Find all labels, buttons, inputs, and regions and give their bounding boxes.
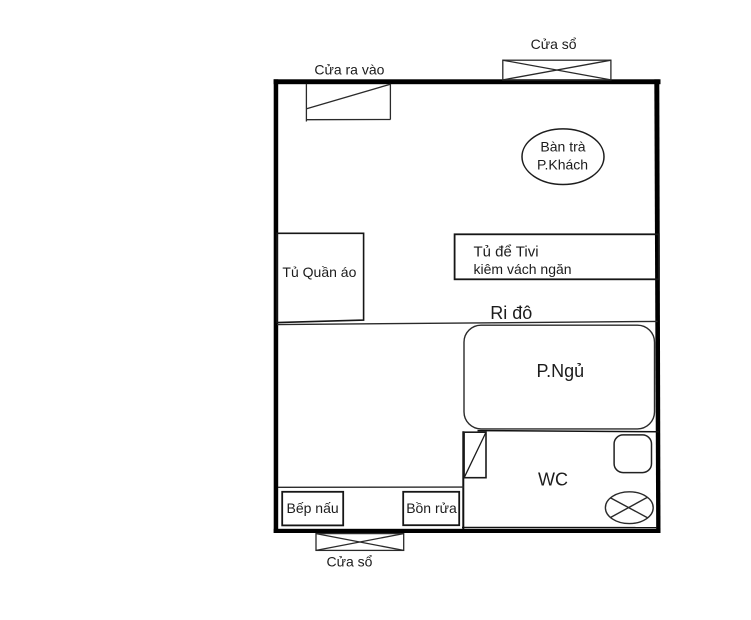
svg-text:Bồn rửa: Bồn rửa bbox=[406, 500, 457, 516]
svg-text:Bếp nấu: Bếp nấu bbox=[287, 500, 339, 516]
svg-text:Tủ để Tivi: Tủ để Tivi bbox=[474, 244, 539, 261]
svg-text:WC: WC bbox=[538, 469, 568, 489]
svg-text:kiêm vách ngăn: kiêm vách ngăn bbox=[474, 261, 572, 277]
svg-text:P.Ngủ: P.Ngủ bbox=[536, 361, 584, 381]
svg-text:Cửa sổ: Cửa sổ bbox=[531, 36, 577, 52]
svg-text:Cửa sổ: Cửa sổ bbox=[327, 554, 373, 570]
svg-text:Tủ Quần áo: Tủ Quần áo bbox=[282, 264, 356, 280]
svg-text:Ri đô: Ri đô bbox=[490, 303, 532, 323]
svg-text:Cửa ra vào: Cửa ra vào bbox=[314, 62, 384, 78]
svg-text:Bàn trà: Bàn trà bbox=[540, 139, 585, 155]
svg-text:P.Khách: P.Khách bbox=[537, 157, 588, 173]
